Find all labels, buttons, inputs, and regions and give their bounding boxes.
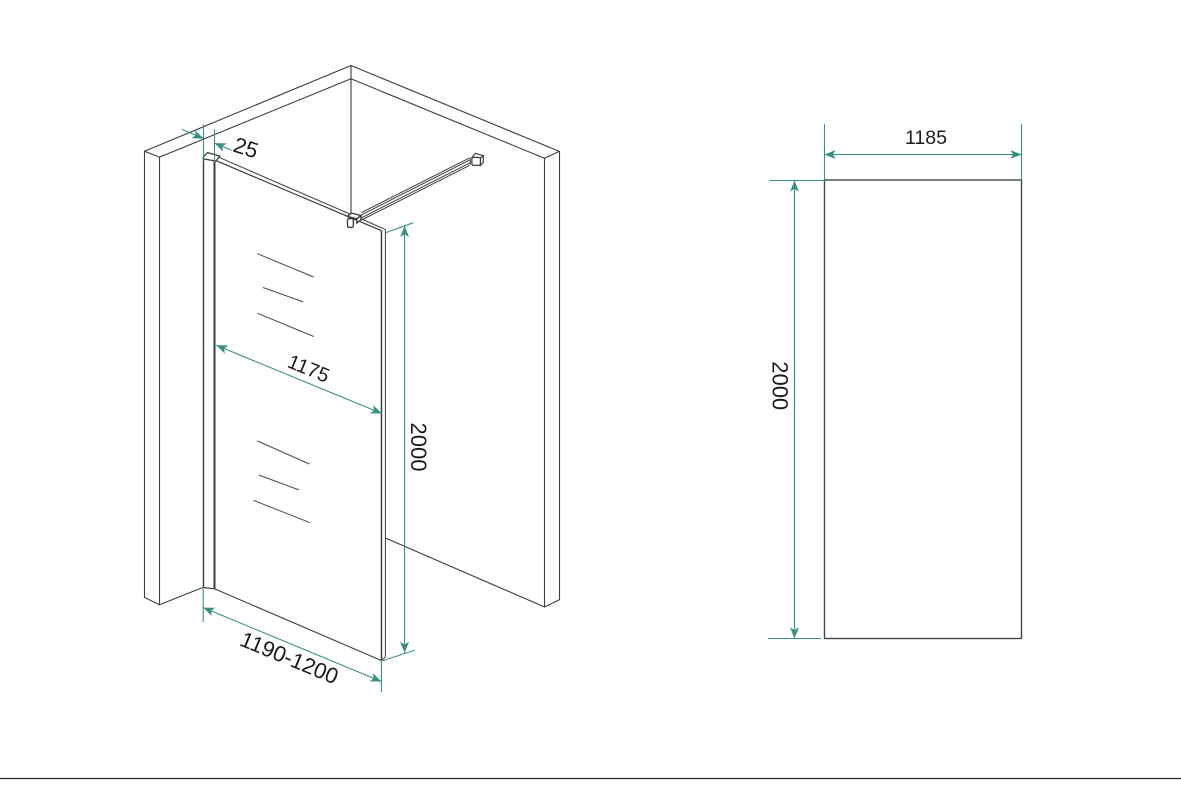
svg-text:1185: 1185 xyxy=(905,127,947,149)
svg-text:2000: 2000 xyxy=(406,423,431,472)
svg-text:2000: 2000 xyxy=(767,361,792,410)
